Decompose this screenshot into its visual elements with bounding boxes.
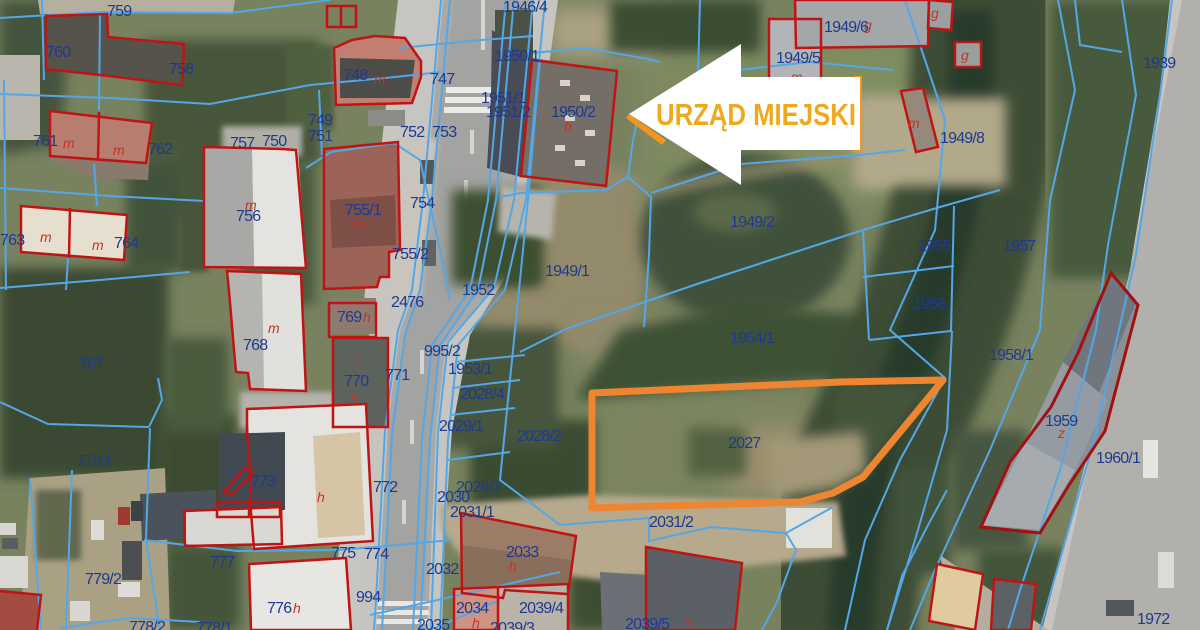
svg-text:1957: 1957 (1003, 238, 1036, 255)
svg-text:m: m (908, 115, 920, 131)
svg-text:2027: 2027 (728, 435, 761, 452)
svg-text:753: 753 (432, 124, 457, 141)
svg-text:761: 761 (33, 133, 58, 150)
svg-text:1949/2: 1949/2 (730, 214, 775, 231)
svg-text:2031/1: 2031/1 (450, 504, 495, 521)
svg-text:1951/2: 1951/2 (486, 104, 531, 121)
svg-text:2035: 2035 (417, 617, 450, 630)
svg-text:2031/2: 2031/2 (649, 514, 694, 531)
svg-text:768: 768 (243, 337, 268, 354)
svg-text:2476: 2476 (391, 294, 424, 311)
svg-text:2029/1: 2029/1 (439, 418, 484, 435)
svg-text:h: h (350, 391, 358, 407)
svg-text:747: 747 (430, 71, 455, 88)
svg-text:777: 777 (210, 554, 235, 571)
svg-text:1952: 1952 (462, 282, 495, 299)
svg-text:748: 748 (343, 67, 368, 84)
svg-text:2028/2: 2028/2 (517, 428, 562, 445)
svg-text:h: h (472, 615, 480, 630)
svg-text:z: z (1057, 425, 1065, 441)
svg-text:g: g (864, 17, 872, 33)
svg-text:779/1: 779/1 (76, 453, 113, 470)
svg-text:2028/3: 2028/3 (456, 479, 501, 496)
svg-text:774: 774 (364, 546, 389, 563)
svg-text:b: b (564, 118, 572, 134)
svg-text:771: 771 (385, 367, 410, 384)
svg-text:h: h (363, 309, 371, 325)
svg-text:1950/2: 1950/2 (551, 104, 596, 121)
svg-text:m: m (245, 197, 257, 213)
svg-text:778/1: 778/1 (196, 620, 233, 630)
svg-text:m: m (113, 142, 125, 158)
svg-text:h: h (293, 600, 301, 616)
svg-text:767: 767 (79, 356, 104, 373)
svg-text:760: 760 (46, 44, 71, 61)
svg-text:m: m (92, 237, 104, 253)
svg-text:762: 762 (148, 141, 173, 158)
svg-text:769: 769 (337, 309, 362, 326)
svg-text:1955: 1955 (918, 238, 951, 255)
svg-text:m: m (268, 320, 280, 336)
svg-text:g: g (931, 5, 939, 21)
svg-text:749: 749 (308, 112, 333, 129)
svg-text:778/2: 778/2 (129, 619, 166, 630)
svg-text:772: 772 (373, 479, 398, 496)
svg-text:1949/6: 1949/6 (824, 19, 869, 36)
svg-text:1949/1: 1949/1 (545, 263, 590, 280)
svg-text:1939: 1939 (1143, 55, 1176, 72)
svg-text:2039/3: 2039/3 (490, 620, 535, 630)
svg-text:h: h (509, 558, 517, 574)
svg-text:g: g (961, 47, 969, 63)
svg-text:2039/5: 2039/5 (625, 616, 670, 630)
svg-text:1972: 1972 (1137, 611, 1170, 628)
svg-text:1960/1: 1960/1 (1096, 450, 1141, 467)
svg-text:764: 764 (114, 235, 139, 252)
svg-text:770: 770 (344, 373, 369, 390)
svg-text:773: 773 (251, 473, 276, 490)
svg-text:h: h (317, 489, 325, 505)
svg-text:1958/1: 1958/1 (989, 347, 1034, 364)
svg-text:779/2: 779/2 (85, 571, 122, 588)
svg-text:1953/1: 1953/1 (448, 361, 493, 378)
svg-text:m: m (63, 135, 75, 151)
svg-text:995/2: 995/2 (424, 343, 461, 360)
svg-text:758: 758 (169, 61, 194, 78)
svg-text:757: 757 (230, 135, 255, 152)
svg-text:754: 754 (410, 195, 435, 212)
svg-text:775: 775 (331, 545, 356, 562)
svg-text:2028/4: 2028/4 (460, 386, 505, 403)
svg-text:1946/4: 1946/4 (503, 0, 548, 16)
svg-text:1956: 1956 (913, 296, 946, 313)
svg-text:994: 994 (356, 589, 381, 606)
svg-text:1949/8: 1949/8 (940, 130, 985, 147)
svg-text:m: m (352, 216, 364, 232)
svg-text:m: m (374, 71, 386, 87)
svg-text:s: s (685, 613, 692, 629)
svg-text:752: 752 (400, 124, 425, 141)
svg-text:1950/1: 1950/1 (495, 48, 540, 65)
svg-text:2032: 2032 (426, 561, 459, 578)
svg-text:751: 751 (308, 128, 333, 145)
svg-text:750: 750 (262, 133, 287, 150)
svg-text:759: 759 (107, 3, 132, 20)
svg-text:1954/1: 1954/1 (730, 330, 775, 347)
svg-text:URZĄD MIEJSKI: URZĄD MIEJSKI (656, 97, 856, 132)
svg-text:776: 776 (267, 600, 292, 617)
svg-text:2039/4: 2039/4 (519, 600, 564, 617)
svg-text:755/2: 755/2 (392, 246, 429, 263)
svg-text:m: m (40, 229, 52, 245)
svg-text:763: 763 (0, 232, 25, 249)
svg-text:1949/5: 1949/5 (776, 50, 821, 67)
